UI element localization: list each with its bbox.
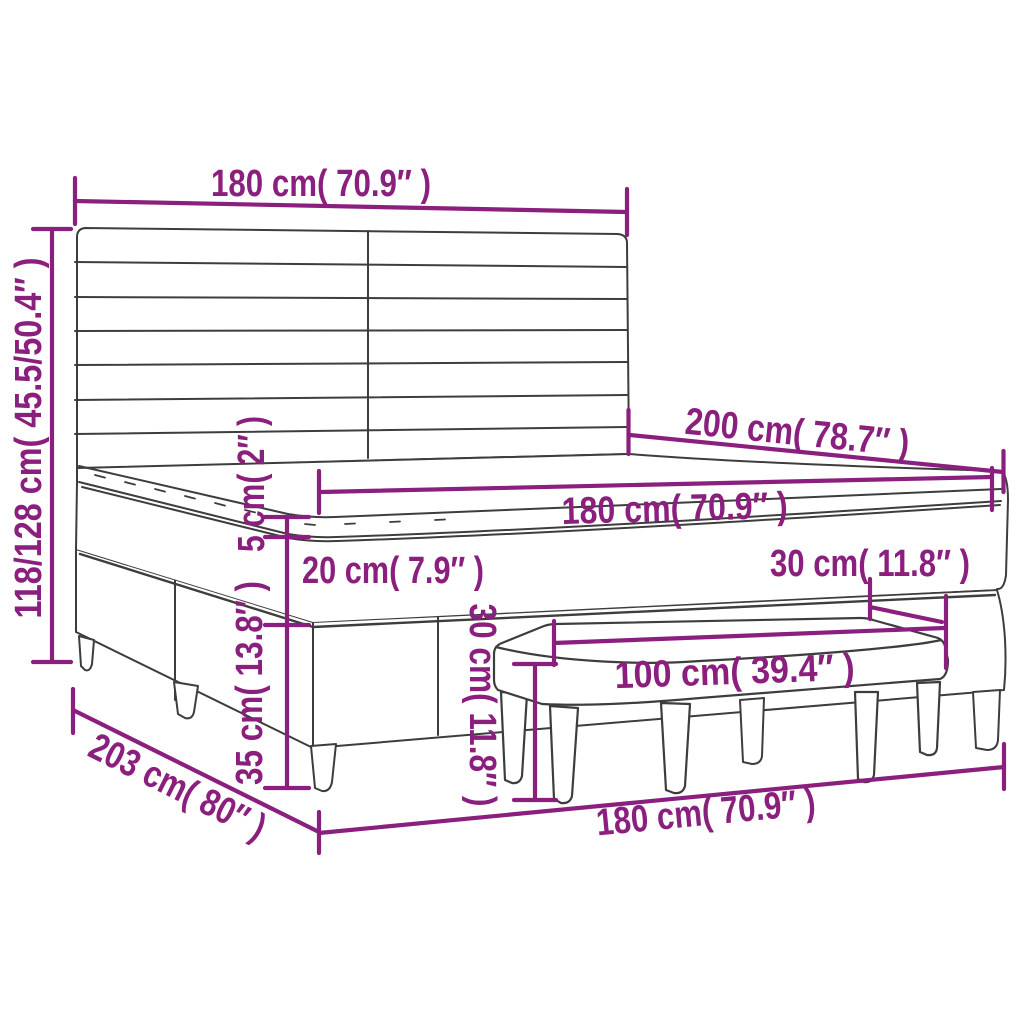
svg-text:180 cm( 70.9″ ): 180 cm( 70.9″ ) — [561, 485, 788, 533]
svg-text:30 cm( 11.8″ ): 30 cm( 11.8″ ) — [770, 543, 970, 585]
svg-text:118/128 cm( 45.5/50.4″ ): 118/128 cm( 45.5/50.4″ ) — [8, 258, 50, 619]
svg-text:100 cm( 39.4″ ): 100 cm( 39.4″ ) — [614, 647, 855, 697]
svg-text:20 cm( 7.9″ ): 20 cm( 7.9″ ) — [302, 550, 484, 592]
svg-text:5 cm( 2″ ): 5 cm( 2″ ) — [231, 416, 273, 552]
svg-text:180 cm( 70.9″ ): 180 cm( 70.9″ ) — [211, 163, 431, 205]
svg-text:180 cm( 70.9″ ): 180 cm( 70.9″ ) — [594, 782, 817, 845]
svg-text:30 cm( 11.8″ ): 30 cm( 11.8″ ) — [461, 604, 503, 807]
svg-text:35 cm( 13.8″ ): 35 cm( 13.8″ ) — [229, 581, 271, 785]
svg-text:200 cm( 78.7″ ): 200 cm( 78.7″ ) — [683, 401, 911, 466]
